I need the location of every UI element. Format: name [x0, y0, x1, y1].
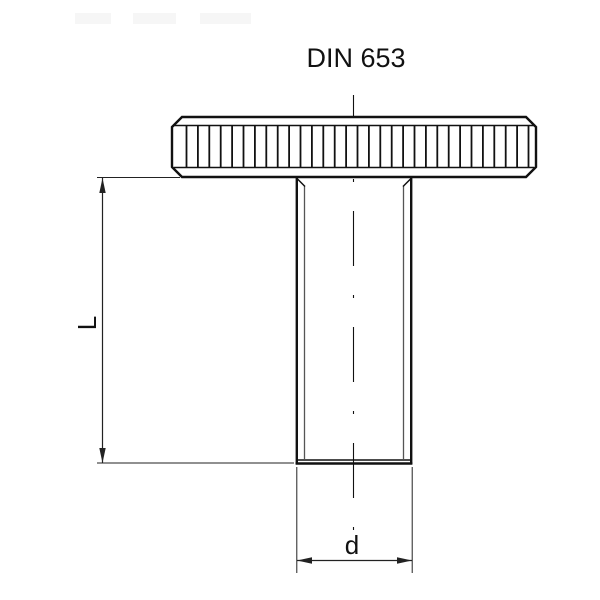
watermark	[75, 13, 251, 24]
length-label: L	[72, 316, 102, 330]
arrow-left-icon	[297, 557, 312, 563]
arrow-down-icon	[99, 448, 105, 463]
drawing-title: DIN 653	[306, 43, 405, 73]
drawing-page: DIN 653 L	[0, 0, 600, 600]
dimension-length: L	[72, 178, 294, 464]
arrow-right-icon	[397, 557, 412, 563]
dimension-diameter: d	[297, 467, 412, 573]
drawing-canvas: DIN 653 L	[0, 0, 600, 600]
thread-chamfer-left	[297, 179, 305, 187]
arrow-up-icon	[99, 178, 105, 193]
thread-chamfer-right	[403, 179, 411, 187]
screw-head	[172, 117, 536, 177]
diameter-label: d	[345, 530, 359, 560]
